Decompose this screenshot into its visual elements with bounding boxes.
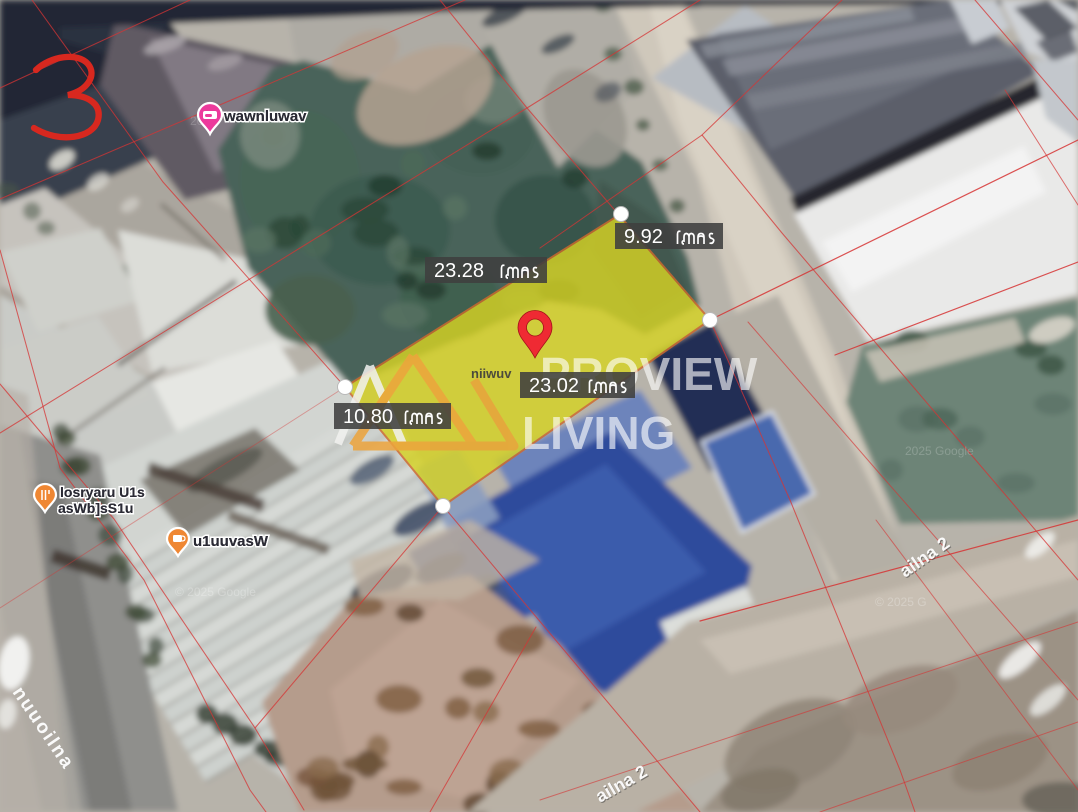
svg-text:u1uuvasW: u1uuvasW: [193, 533, 269, 550]
svg-text:© 2025 Google: © 2025 Google: [175, 585, 256, 599]
svg-text:LIVING: LIVING: [522, 407, 675, 459]
svg-text:losryaru U1s: losryaru U1s: [60, 484, 145, 500]
svg-text:© 2025 G: © 2025 G: [875, 595, 927, 609]
svg-text:9.92: 9.92: [624, 226, 663, 248]
svg-text:23.28: 23.28: [434, 260, 484, 282]
svg-text:23.02: 23.02: [529, 375, 579, 397]
svg-text:niiwuv: niiwuv: [471, 366, 512, 381]
svg-text:10.80: 10.80: [343, 406, 393, 428]
svg-text:2025 Google: 2025 Google: [905, 444, 974, 458]
svg-text:asWb]sS1u: asWb]sS1u: [58, 500, 133, 516]
svg-text:wawnluwav: wawnluwav: [223, 108, 307, 125]
